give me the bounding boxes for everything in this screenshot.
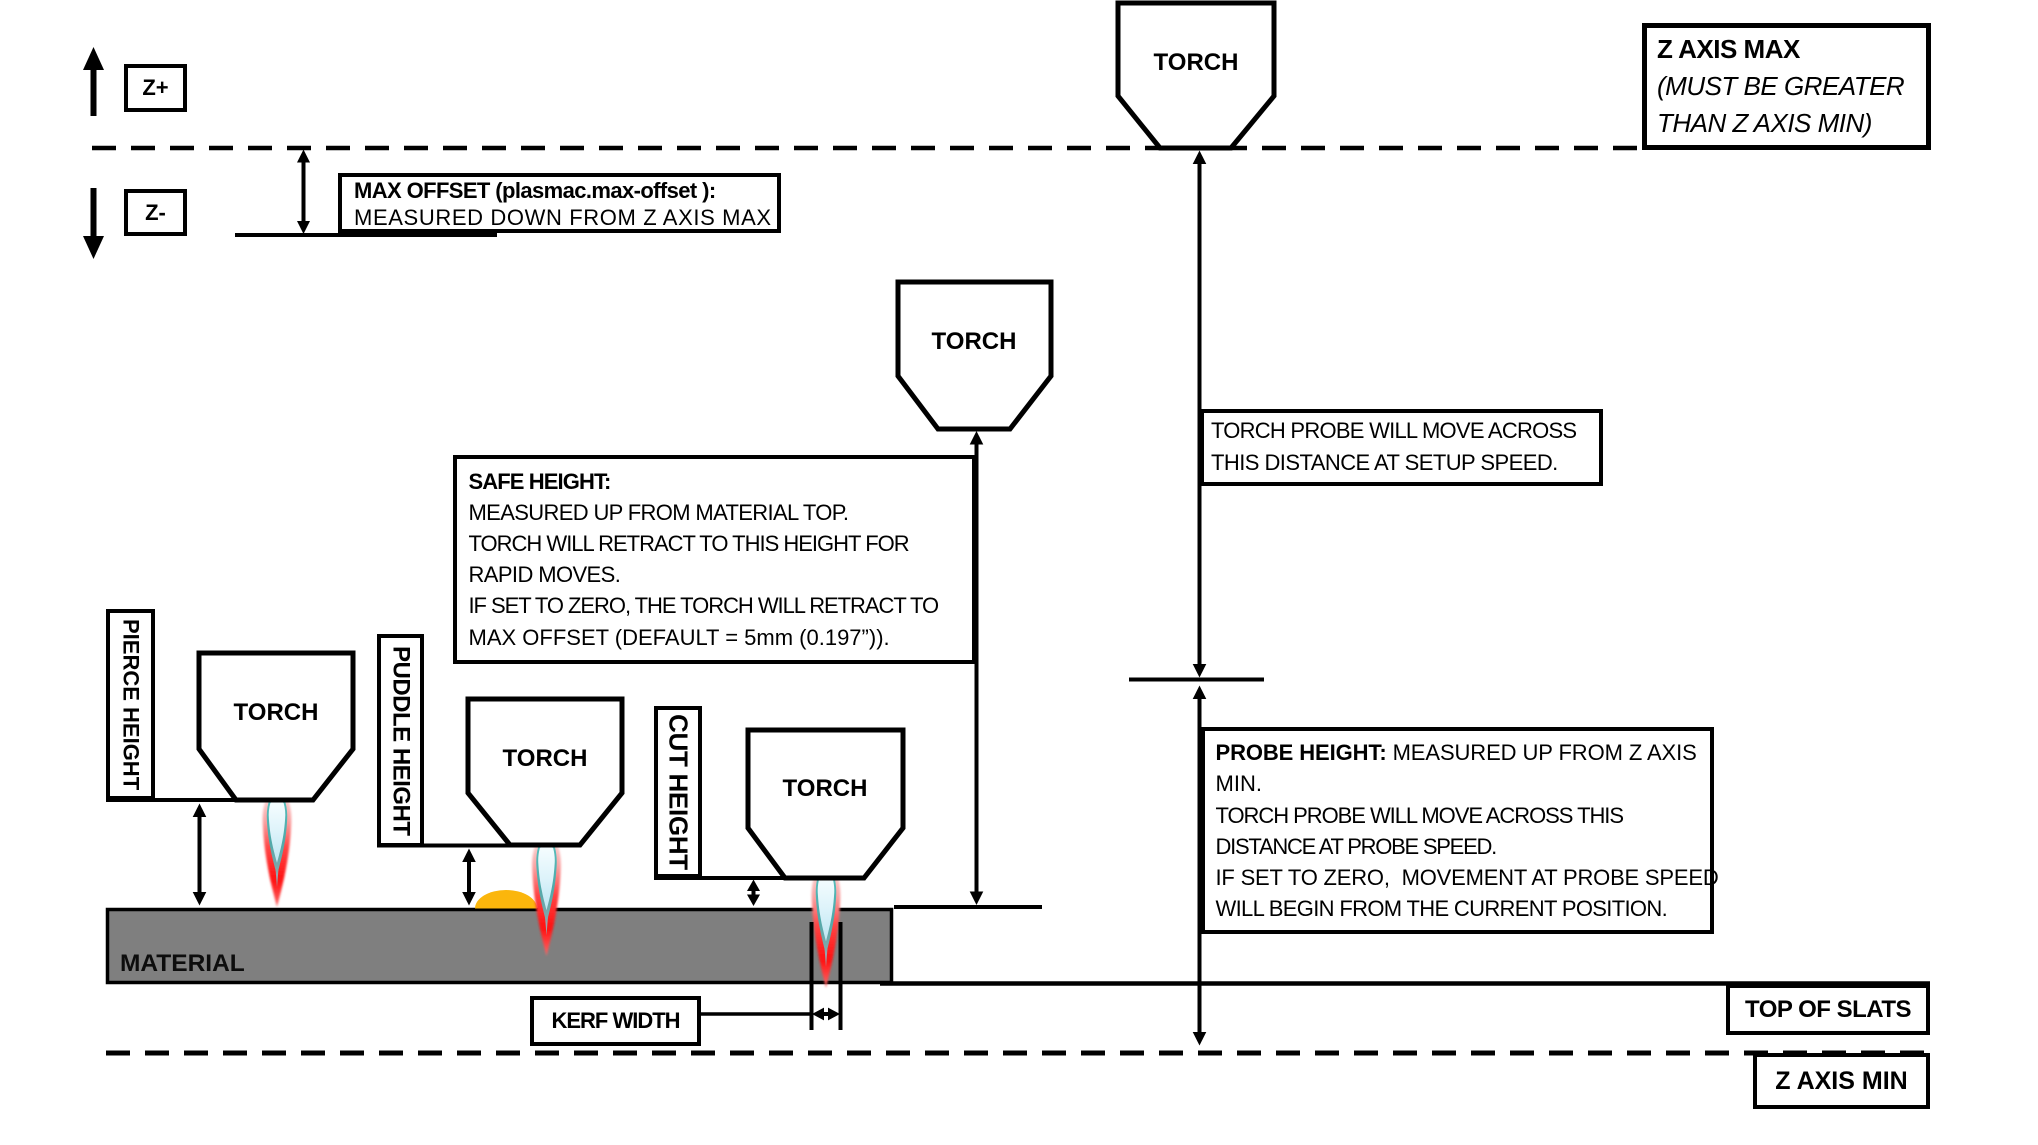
svg-text:TORCH: TORCH [503, 745, 588, 772]
svg-text:TORCH: TORCH [783, 775, 868, 802]
svg-text:TORCH: TORCH [1154, 49, 1239, 76]
svg-text:TORCH: TORCH [932, 328, 1017, 355]
svg-text:TORCH: TORCH [234, 699, 319, 726]
